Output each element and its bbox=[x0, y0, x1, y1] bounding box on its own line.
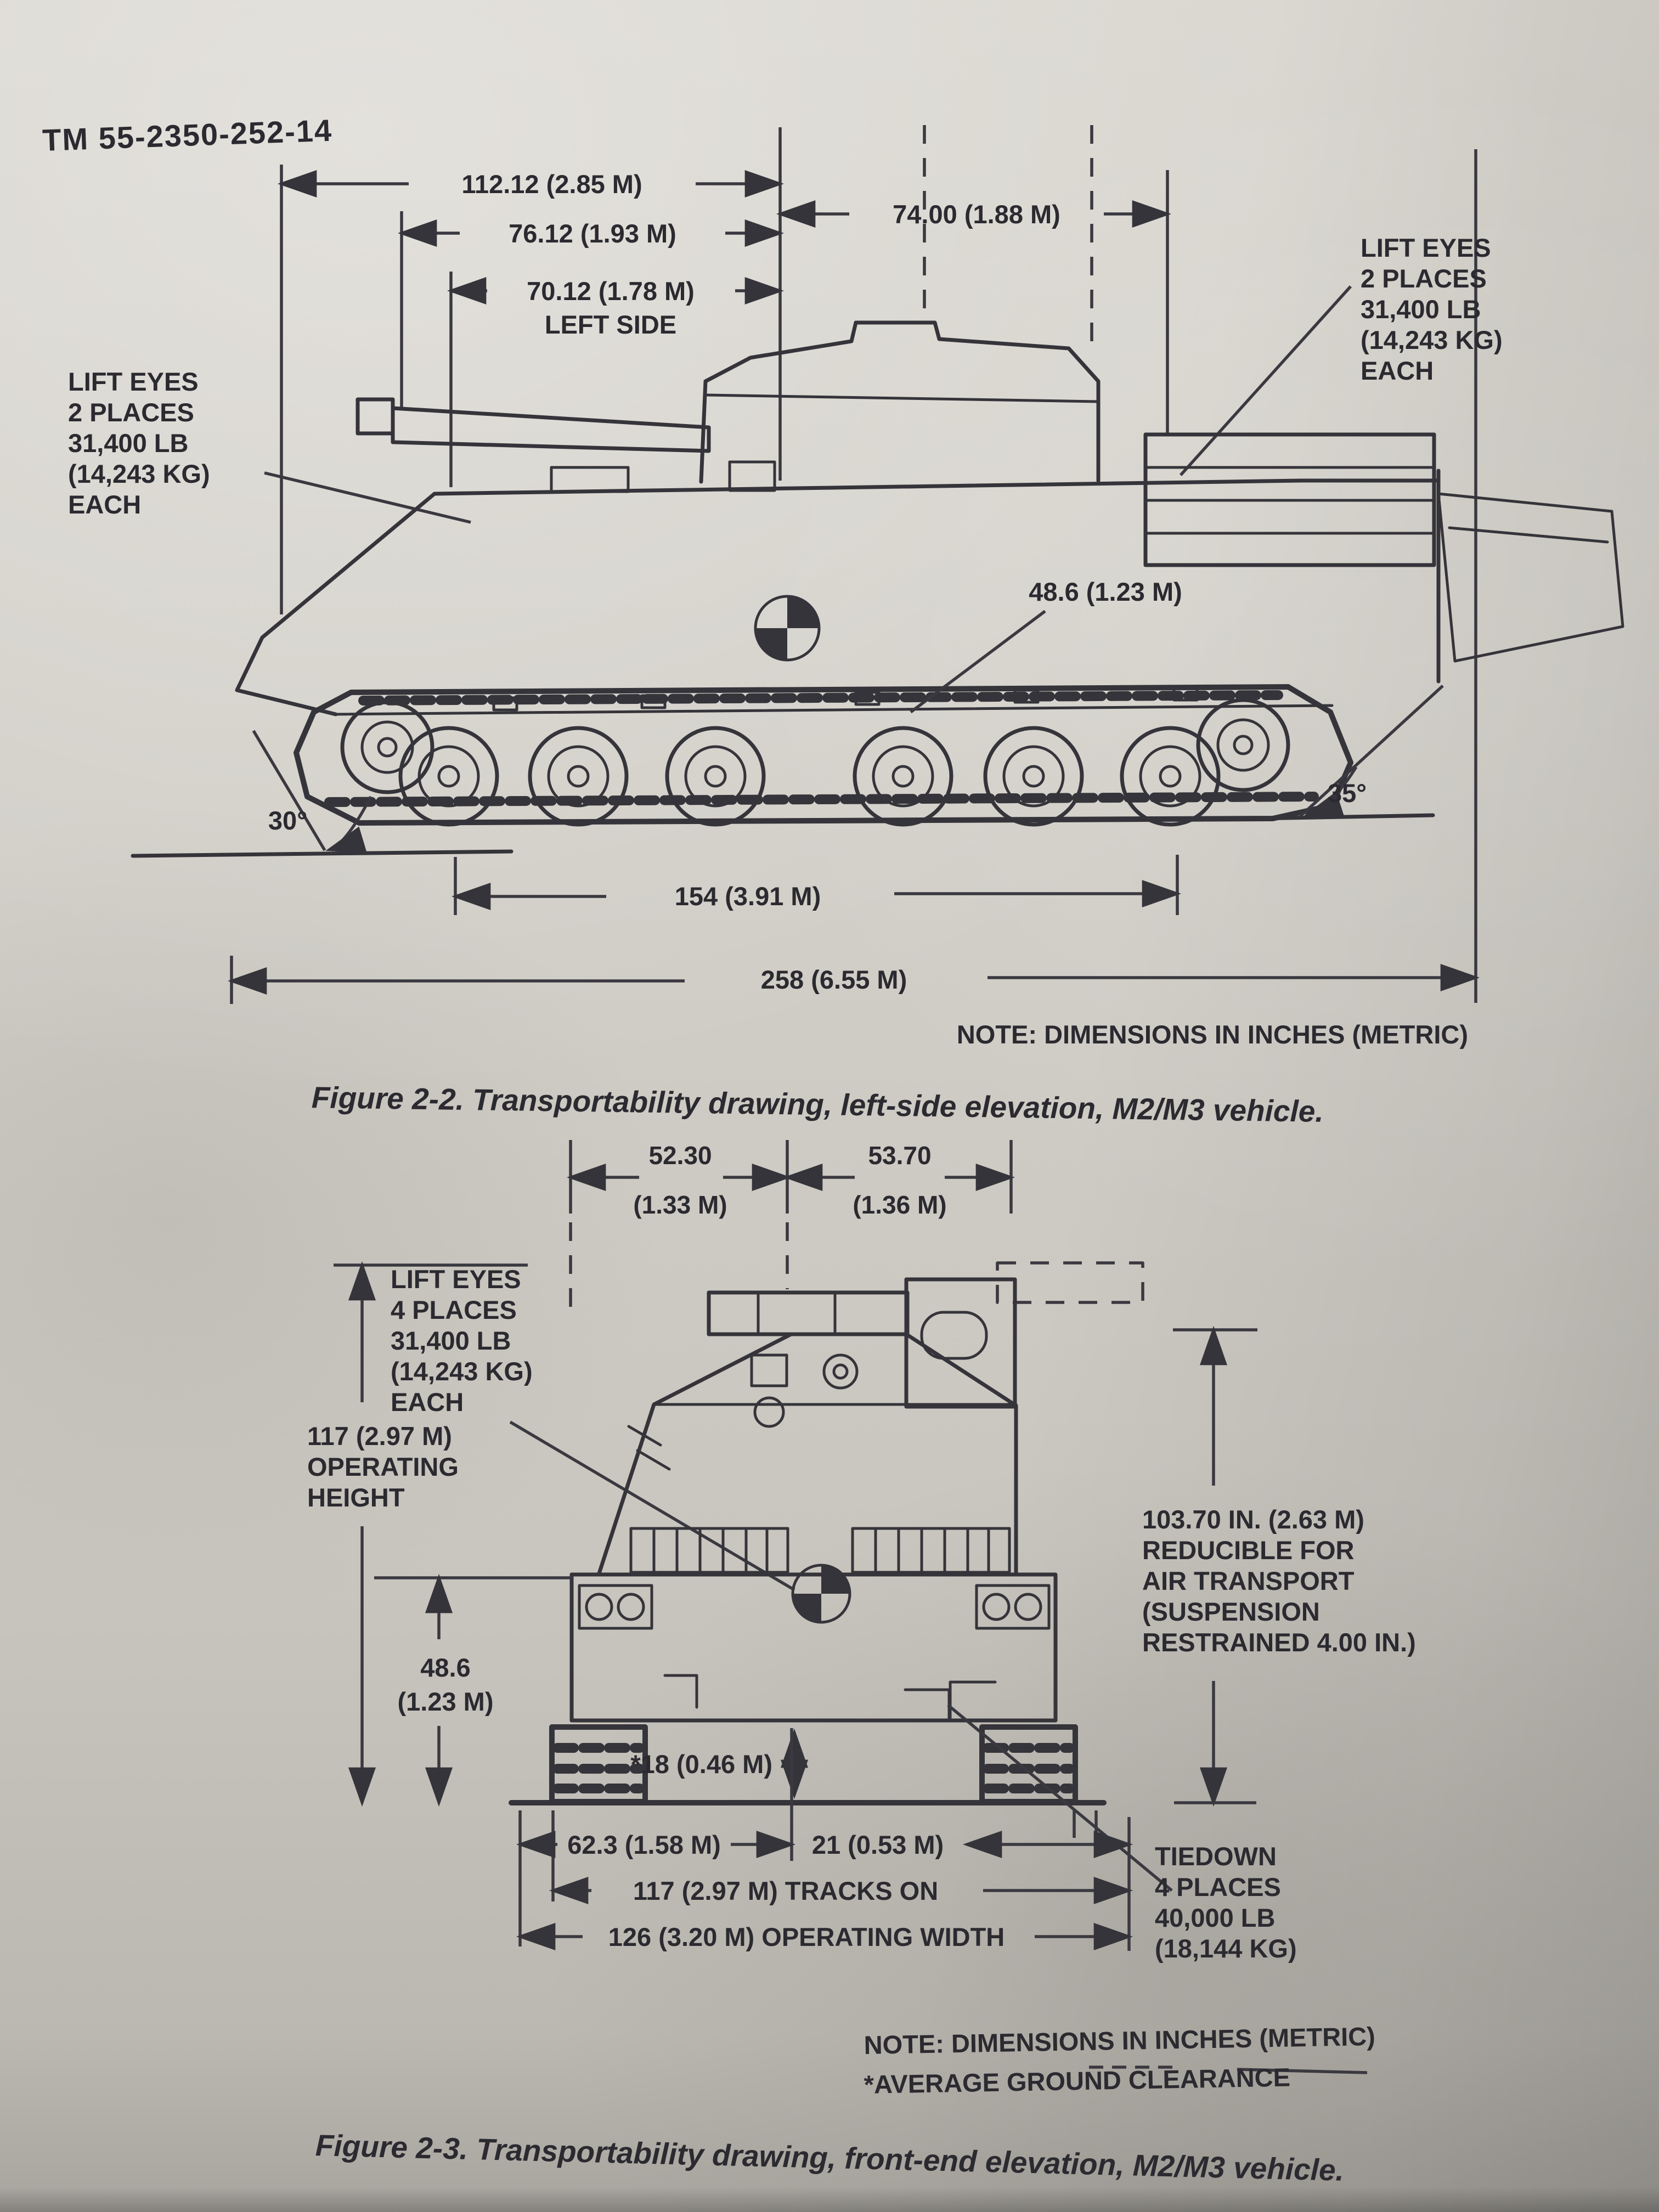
lift-left-line: 31,400 LB bbox=[68, 428, 188, 458]
fig23-dim-5370: 53.70 (1.36 M) bbox=[787, 1141, 1011, 1219]
dim-label-154: 154 (3.91 M) bbox=[675, 882, 821, 911]
figure-2-3-drawing: 52.30 (1.33 M) 53.70 (1.36 M) LIFT EYES … bbox=[307, 1140, 1416, 2187]
angle-label-30: 30° bbox=[268, 806, 307, 835]
lift-left-line: EACH bbox=[68, 490, 141, 519]
reducible-line: AIR TRANSPORT bbox=[1142, 1566, 1355, 1595]
figure-2-2-drawing: 112.12 (2.85 M) 74.00 (1.88 M) 76.12 (1.… bbox=[68, 125, 1623, 1128]
fig22-lift-eyes-left: LIFT EYES 2 PLACES 31,400 LB (14,243 KG)… bbox=[68, 367, 471, 522]
fig22-dim-258: 258 (6.55 M) bbox=[232, 956, 1476, 1004]
height-line: HEIGHT bbox=[307, 1483, 405, 1512]
tiedown-line: TIEDOWN bbox=[1155, 1842, 1277, 1871]
dim-label-258: 258 (6.55 M) bbox=[761, 965, 907, 994]
vehicle-front-view bbox=[511, 1263, 1143, 1803]
lift-line: 4 PLACES bbox=[391, 1295, 517, 1324]
height-line: 117 (2.97 M) bbox=[307, 1421, 452, 1451]
fig22-note: NOTE: DIMENSIONS IN INCHES (METRIC) bbox=[957, 1020, 1468, 1049]
dim-label-486a: 48.6 bbox=[420, 1653, 470, 1682]
reducible-line: 103.70 IN. (2.63 M) bbox=[1142, 1505, 1364, 1534]
manual-number: TM 55-2350-252-14 bbox=[42, 113, 333, 157]
angle-label-35: 35° bbox=[1328, 778, 1367, 808]
dim-label-486b: (1.23 M) bbox=[398, 1687, 494, 1716]
lift-right-line: 2 PLACES bbox=[1361, 264, 1487, 293]
fig23-note2: *AVERAGE GROUND CLEARANCE bbox=[864, 2062, 1290, 2099]
tiedown-line: 40,000 LB bbox=[1155, 1903, 1275, 1932]
dim-label-5370-m: (1.36 M) bbox=[853, 1190, 946, 1219]
road-wheels bbox=[400, 728, 1218, 825]
fig23-caption: Figure 2-3. Transportability drawing, fr… bbox=[315, 2128, 1344, 2187]
dim-label-112: 112.12 (2.85 M) bbox=[461, 170, 642, 199]
dim-label-74: 74.00 (1.88 M) bbox=[893, 200, 1060, 229]
fig23-top-extensions bbox=[571, 1140, 1011, 1310]
lift-right-line: EACH bbox=[1361, 356, 1434, 385]
dim-label-5370: 53.70 bbox=[868, 1141, 931, 1170]
manual-page: TM 55-2350-252-14 112.12 (2.85 M) 74.00 … bbox=[0, 0, 1659, 2212]
fig22-dim-70: 70.12 (1.78 M) LEFT SIDE bbox=[451, 276, 780, 339]
reducible-line: (SUSPENSION bbox=[1142, 1597, 1320, 1626]
fig22-lift-eyes-right: LIFT EYES 2 PLACES 31,400 LB (14,243 KG)… bbox=[1181, 233, 1503, 475]
fig23-dim-5230: 52.30 (1.33 M) bbox=[571, 1141, 787, 1219]
dim-label-21: 21 (0.53 M) bbox=[812, 1830, 944, 1859]
fig23-dim-clearance: *18 (0.46 M) bbox=[630, 1733, 794, 1795]
page-number-partial: 2-6 bbox=[36, 2210, 93, 2212]
lift-left-line: LIFT EYES bbox=[68, 367, 199, 396]
dim-label-tracks: 117 (2.97 M) TRACKS ON bbox=[633, 1876, 938, 1905]
lift-right-line: LIFT EYES bbox=[1361, 233, 1491, 262]
fig22-dim-154: 154 (3.91 M) bbox=[455, 855, 1177, 915]
clearance-label: *18 (0.46 M) bbox=[630, 1750, 772, 1779]
fig23-dim-486: 48.6 (1.23 M) bbox=[374, 1578, 573, 1803]
leader-line bbox=[1181, 286, 1351, 475]
height-line: OPERATING bbox=[307, 1452, 459, 1481]
page-canvas: TM 55-2350-252-14 112.12 (2.85 M) 74.00 … bbox=[0, 0, 1659, 2212]
dim-label-5230: 52.30 bbox=[648, 1141, 712, 1170]
leader-line bbox=[510, 1422, 794, 1590]
fig23-dim-width: 126 (3.20 M) OPERATING WIDTH bbox=[520, 1922, 1129, 1951]
fig22-dim-74: 74.00 (1.88 M) bbox=[780, 200, 1167, 229]
fig23-notes: NOTE: DIMENSIONS IN INCHES (METRIC) *AVE… bbox=[864, 2022, 1375, 2099]
dim-label-width: 126 (3.20 M) OPERATING WIDTH bbox=[608, 1922, 1005, 1951]
fig22-dim-76: 76.12 (1.93 M) bbox=[402, 219, 780, 248]
lift-right-line: 31,400 LB bbox=[1361, 295, 1481, 324]
lift-line: LIFT EYES bbox=[391, 1265, 521, 1294]
dim-label-70: 70.12 (1.78 M) bbox=[527, 276, 695, 306]
lift-line: (14,243 KG) bbox=[391, 1357, 533, 1386]
dim-label-623: 62.3 (1.58 M) bbox=[567, 1830, 721, 1859]
fig23-dim-623: 62.3 (1.58 M) bbox=[520, 1830, 792, 1859]
fig22-dim-112: 112.12 (2.85 M) bbox=[281, 170, 780, 199]
fig22-caption: Figure 2-2. Transportability drawing, le… bbox=[311, 1080, 1324, 1128]
dim-label-76: 76.12 (1.93 M) bbox=[509, 219, 676, 248]
reducible-line: RESTRAINED 4.00 IN.) bbox=[1142, 1628, 1416, 1657]
lift-left-line: (14,243 KG) bbox=[68, 459, 210, 488]
lift-line: 31,400 LB bbox=[391, 1326, 511, 1355]
lift-right-line: (14,243 KG) bbox=[1361, 325, 1503, 354]
leader-line bbox=[264, 473, 471, 522]
lift-left-line: 2 PLACES bbox=[68, 398, 194, 427]
tiedown-line: (18,144 KG) bbox=[1155, 1934, 1297, 1963]
left-side-label: LEFT SIDE bbox=[545, 310, 676, 339]
fig23-tiedown: TIEDOWN 4 PLACES 40,000 LB (18,144 KG) bbox=[1155, 1842, 1297, 1963]
lift-line: EACH bbox=[391, 1387, 464, 1417]
reducible-line: REDUCIBLE FOR bbox=[1142, 1536, 1354, 1565]
dim-label-486: 48.6 (1.23 M) bbox=[1029, 577, 1182, 606]
fig23-dim-reducible: 103.70 IN. (2.63 M) REDUCIBLE FOR AIR TR… bbox=[1142, 1330, 1416, 1803]
fig23-dim-21: 21 (0.53 M) bbox=[812, 1830, 1129, 1859]
vehicle-side-view bbox=[237, 323, 1623, 825]
dim-label-5230-m: (1.33 M) bbox=[633, 1190, 727, 1219]
fig22-angle-front: 30° bbox=[133, 731, 511, 856]
tiedown-line: 4 PLACES bbox=[1155, 1872, 1281, 1901]
fig23-dim-tracks: 117 (2.97 M) TRACKS ON bbox=[553, 1876, 1129, 1905]
fig23-note: NOTE: DIMENSIONS IN INCHES (METRIC) bbox=[864, 2022, 1375, 2059]
